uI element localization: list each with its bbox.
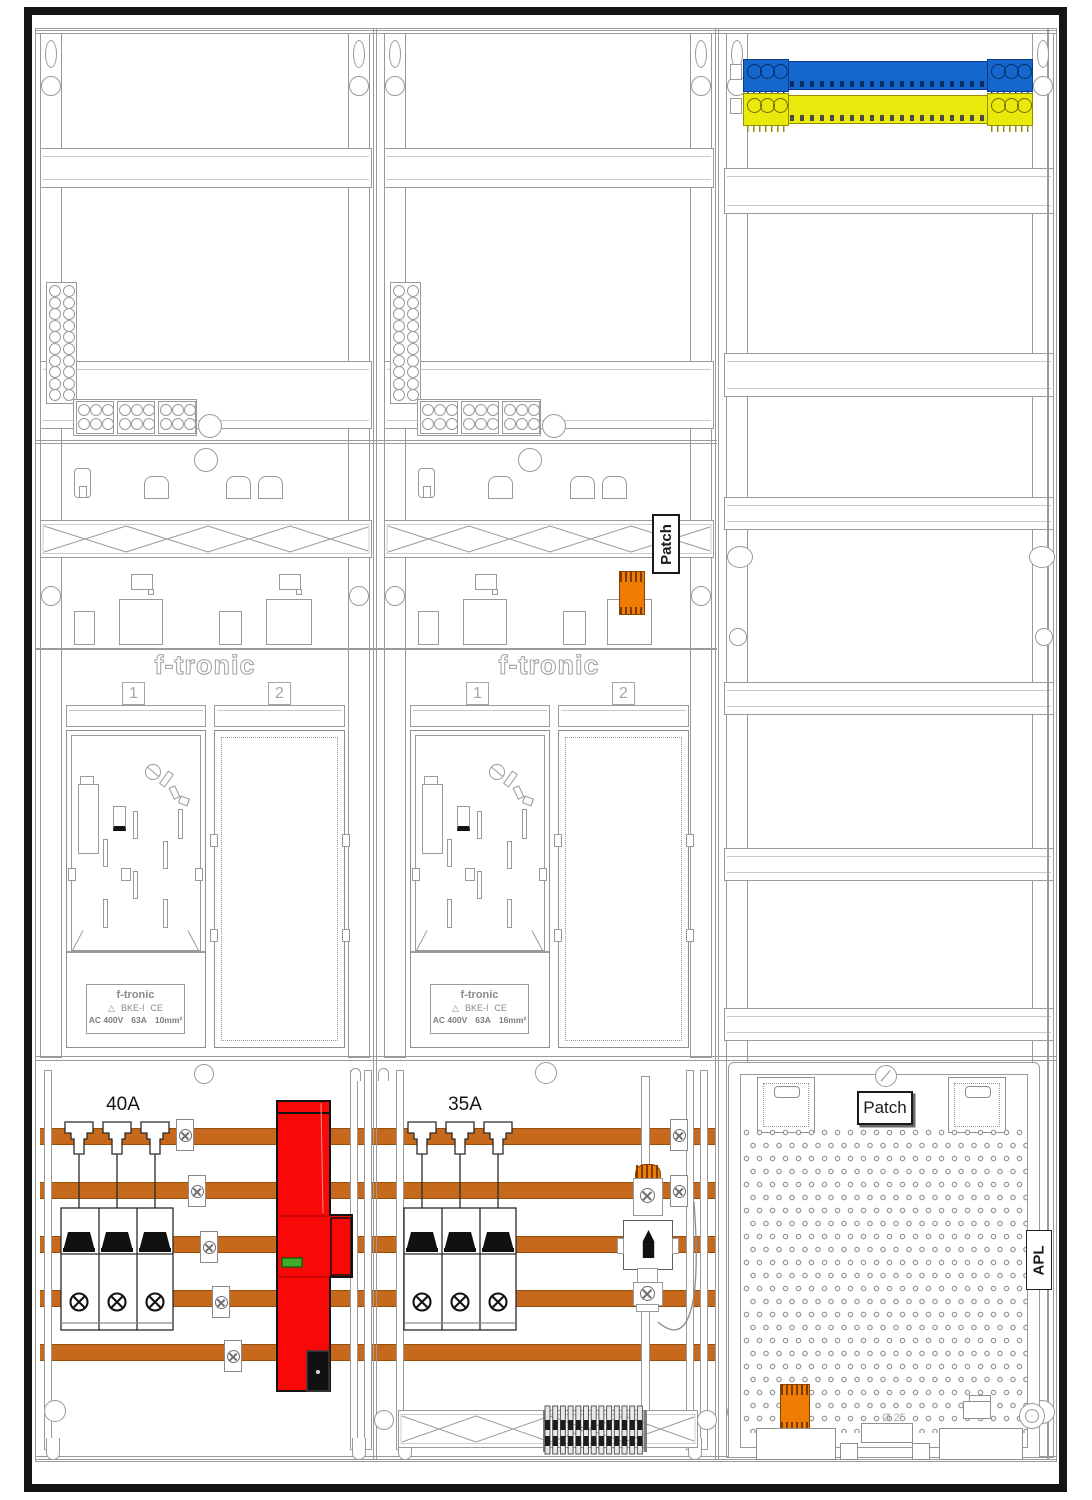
- din-clip: [131, 574, 153, 590]
- triangle-logo-icon: △: [108, 1002, 115, 1014]
- terminal-hole: [63, 285, 75, 297]
- terminal-hole: [78, 418, 90, 430]
- terminal-block-horizontal: [73, 399, 197, 436]
- terminal-hole: [393, 308, 405, 320]
- din-rail-horizontal: [384, 148, 714, 188]
- bar-connector: [730, 64, 742, 80]
- busbar-copper: [40, 1344, 716, 1361]
- terminal-hole: [528, 418, 540, 430]
- position-2-box: 2: [268, 682, 291, 705]
- terminal-hole: [90, 418, 102, 430]
- rail-hole: [729, 628, 747, 646]
- terminal-hole: [63, 320, 75, 332]
- terminal-hole: [63, 378, 75, 390]
- terminal-strip: [543, 1404, 647, 1456]
- terminal-hole: [160, 418, 172, 430]
- main-switch-red: [274, 1098, 356, 1396]
- terminal-hole: [422, 404, 434, 416]
- terminal-hole: [49, 308, 61, 320]
- bke-type-label: f-tronic △ BKE-I CE AC 400V 63A 16mm²: [430, 984, 529, 1034]
- terminal-hole: [143, 404, 155, 416]
- terminal-hole: [504, 418, 516, 430]
- rail-foot: [46, 1438, 60, 1460]
- cable-clamp: [570, 476, 595, 499]
- patch-connector-orange: [619, 571, 645, 615]
- device-cap: [636, 1304, 659, 1312]
- rail-hole: [44, 1400, 66, 1422]
- terminal-end-hole: [542, 414, 566, 438]
- terminal-hole: [407, 308, 419, 320]
- schematic-page: Patch f-tronic 1 2 f-tronic △ BKE-I: [0, 0, 1092, 1500]
- terminal-hole: [407, 366, 419, 378]
- terminal-hole: [475, 418, 487, 430]
- screw-icon: [145, 764, 161, 780]
- plate-header: [66, 705, 206, 727]
- busbar-clamp: [188, 1175, 206, 1207]
- bke-brand: f-tronic: [431, 989, 528, 1002]
- terminal-hole: [63, 331, 75, 343]
- mounting-block: [74, 611, 95, 645]
- terminal-hole: [63, 343, 75, 355]
- pe-bar-end: [987, 93, 1033, 126]
- terminal-hole: [407, 355, 419, 367]
- rail-hole: [1033, 76, 1053, 96]
- cable-clamp-inner: [423, 486, 431, 498]
- busbar-clamp: [200, 1231, 218, 1263]
- din-rail-horizontal: [724, 168, 1054, 214]
- bottom-cutout: [939, 1428, 1023, 1460]
- terminal-hole: [393, 285, 405, 297]
- terminal-hole: [119, 404, 131, 416]
- mounting-rail-vertical: [44, 1070, 52, 1450]
- rail-hole: [374, 1410, 394, 1430]
- terminal-hole: [184, 404, 196, 416]
- terminal-group: [420, 401, 458, 434]
- ce-mark: CE: [150, 1002, 163, 1014]
- indicator-green: [282, 1258, 302, 1267]
- breaker-rating-label: 35A: [430, 1094, 500, 1116]
- rail-hole: [349, 586, 369, 606]
- rail-hole: [535, 1062, 557, 1084]
- rail-hole: [385, 76, 405, 96]
- terminal-hole: [49, 389, 61, 401]
- terminal-group: [461, 401, 499, 434]
- din-clip: [279, 574, 301, 590]
- busbar-clamp: [224, 1340, 242, 1372]
- terminal-hole: [393, 331, 405, 343]
- column-divider: [373, 28, 377, 1460]
- panel-cutout: [948, 1077, 1006, 1133]
- patch-label-vertical: Patch: [652, 514, 680, 574]
- rail-clip: [350, 1068, 361, 1081]
- terminal-hole: [528, 404, 540, 416]
- multimedia-panel: Patch Ø 25: [728, 1062, 1040, 1458]
- terminal-hole: [49, 320, 61, 332]
- neutral-bar-end: [743, 59, 789, 92]
- terminal-hole: [131, 404, 143, 416]
- circuit-breaker-3pole-40A: [60, 1120, 174, 1332]
- terminal-hole: [516, 418, 528, 430]
- terminal-hole: [487, 404, 499, 416]
- terminal-end-hole: [198, 414, 222, 438]
- bke-model: BKE-I: [121, 1002, 145, 1014]
- terminal-hole: [78, 404, 90, 416]
- terminal-hole: [172, 418, 184, 430]
- terminal-hole: [393, 297, 405, 309]
- din-rail-horizontal: [724, 1008, 1054, 1041]
- terminal-hole: [516, 404, 528, 416]
- clamp-screw-icon: [179, 1129, 192, 1142]
- terminal-hole: [446, 404, 458, 416]
- terminal-group: [158, 401, 196, 434]
- plate-header: [214, 705, 345, 727]
- pe-bar-end: [743, 93, 789, 126]
- terminal-block-vertical: [390, 282, 421, 404]
- din-rail-horizontal: [724, 353, 1054, 397]
- pe-bar-terminals: [790, 115, 986, 121]
- din-clip-foot: [296, 589, 302, 595]
- terminal-hole: [407, 378, 419, 390]
- meter-plate-equipped: f-tronic △ BKE-I CE AC 400V 63A 10mm²: [66, 730, 206, 1048]
- neutral-bar-terminals: [790, 81, 986, 87]
- mounting-hole: [194, 448, 218, 472]
- pe-busbar-yellow: [744, 95, 1032, 124]
- conduit-box: [861, 1423, 913, 1443]
- mounting-block: [563, 611, 586, 645]
- terminal-hole: [63, 355, 75, 367]
- apl-label-text: APL: [1031, 1245, 1048, 1275]
- meter-plate-empty: [214, 730, 345, 1048]
- terminal-hole: [172, 404, 184, 416]
- column-divider: [715, 28, 719, 1460]
- patch-panel-label: Patch: [857, 1091, 913, 1125]
- rail-hole: [194, 1064, 214, 1084]
- position-1-box: 1: [122, 682, 145, 705]
- cutout-handle: [965, 1086, 991, 1098]
- frame-line: [35, 30, 1057, 34]
- mounting-hole: [518, 448, 542, 472]
- apl-label-box: APL: [1026, 1230, 1052, 1290]
- bottom-cutout-small: [840, 1443, 858, 1460]
- terminal-hole: [49, 355, 61, 367]
- terminal-hole: [422, 418, 434, 430]
- bottom-cutout: [756, 1428, 836, 1460]
- din-rail-horizontal: [40, 148, 372, 188]
- brand-logo: f-tronic: [90, 650, 320, 681]
- terminal-hole: [434, 418, 446, 430]
- mounting-rail-vertical: [364, 1070, 372, 1450]
- terminal-hole: [407, 297, 419, 309]
- terminal-hole: [393, 320, 405, 332]
- cable-duct: [40, 520, 372, 558]
- device-cap-orange: [635, 1164, 661, 1179]
- rail-hole: [1035, 628, 1053, 646]
- bke-type-label: f-tronic △ BKE-I CE AC 400V 63A 10mm²: [86, 984, 185, 1034]
- cutout-handle: [774, 1086, 800, 1098]
- terminal-hole: [102, 404, 114, 416]
- rail-slot: [1037, 40, 1049, 68]
- terminal-hole: [393, 389, 405, 401]
- terminal-hole: [49, 378, 61, 390]
- terminal-screw-icon: [640, 1286, 655, 1301]
- cable-clamp: [258, 476, 283, 499]
- bracket: [969, 1395, 991, 1402]
- din-rail-horizontal: [724, 682, 1054, 715]
- bke-brand: f-tronic: [87, 989, 184, 1002]
- cable-clamp-inner: [79, 486, 87, 498]
- terminal-hole: [393, 366, 405, 378]
- din-clip-foot: [492, 589, 498, 595]
- terminal-hole: [49, 343, 61, 355]
- plate-header: [558, 705, 689, 727]
- terminal-hole: [487, 418, 499, 430]
- patch-label-text: Patch: [658, 524, 675, 565]
- terminal-hole: [102, 418, 114, 430]
- breaker-rating-label: 40A: [88, 1094, 158, 1116]
- din-clip-foot: [148, 589, 154, 595]
- rail-slot: [695, 40, 707, 68]
- bar-connector: [730, 98, 742, 114]
- busbar-clamp: [176, 1119, 194, 1151]
- neutral-bar-end: [987, 59, 1033, 92]
- position-2-box: 2: [612, 682, 635, 705]
- terminal-hole: [463, 404, 475, 416]
- terminal-hole: [184, 418, 196, 430]
- position-1-box: 1: [466, 682, 489, 705]
- switch-wing: [672, 1238, 679, 1254]
- terminal-hole: [407, 285, 419, 297]
- terminal-hole: [393, 355, 405, 367]
- rail-slot: [389, 40, 401, 68]
- bke-model: BKE-I: [465, 1002, 489, 1014]
- panel-cutout: [757, 1077, 815, 1133]
- meter-plate-empty: [558, 730, 689, 1048]
- terminal-hole: [434, 404, 446, 416]
- rail-slot: [1029, 546, 1055, 568]
- mounting-block: [418, 611, 439, 645]
- mounting-block: [219, 611, 242, 645]
- terminal-hole: [90, 404, 102, 416]
- rail-hole: [697, 1410, 717, 1430]
- terminal-hole: [407, 320, 419, 332]
- brand-logo: f-tronic: [434, 650, 664, 681]
- mounting-strip: [641, 1076, 650, 1174]
- terminal-hole: [393, 343, 405, 355]
- ce-mark: CE: [494, 1002, 507, 1014]
- din-rail-horizontal: [724, 497, 1054, 530]
- clamp-screw-icon: [215, 1296, 228, 1309]
- terminal-hole: [49, 285, 61, 297]
- terminal-hole: [463, 418, 475, 430]
- circuit-breaker-3pole-35A: [403, 1120, 517, 1332]
- terminal-hole: [504, 404, 516, 416]
- terminal-hole: [119, 418, 131, 430]
- rail-foot: [352, 1438, 366, 1460]
- rail-slot: [727, 546, 753, 568]
- mounting-block: [266, 599, 312, 645]
- terminal-hole: [63, 308, 75, 320]
- neutral-busbar-blue: [744, 61, 1032, 90]
- terminal-hole: [475, 404, 487, 416]
- din-rail-horizontal: [724, 848, 1054, 881]
- screw-icon: [489, 764, 505, 780]
- bracket: [963, 1401, 991, 1419]
- mounting-block: [119, 599, 163, 645]
- bottom-cutout-small: [912, 1443, 930, 1460]
- rail-hole: [691, 586, 711, 606]
- terminal-hole: [446, 418, 458, 430]
- rail-hole: [349, 76, 369, 96]
- switch-wing: [617, 1238, 624, 1254]
- frame-line: [35, 1056, 1057, 1061]
- patch-connector-orange: [780, 1384, 810, 1430]
- terminal-hole: [407, 343, 419, 355]
- cable-clamp: [488, 476, 513, 499]
- busbar-clamp: [212, 1286, 230, 1318]
- terminal-group: [76, 401, 114, 434]
- terminal-screw-icon: [640, 1188, 655, 1203]
- terminal-hole: [63, 366, 75, 378]
- terminal-hole: [131, 418, 143, 430]
- cable-clamp: [602, 476, 627, 499]
- rail-slot: [353, 40, 365, 68]
- terminal-hole: [49, 331, 61, 343]
- triangle-logo-icon: △: [452, 1002, 459, 1014]
- terminal-hole: [160, 404, 172, 416]
- clamp-screw-icon: [673, 1129, 686, 1142]
- clamp-screw-icon: [203, 1241, 216, 1254]
- din-clip: [475, 574, 497, 590]
- meter-plate-equipped: f-tronic △ BKE-I CE AC 400V 63A 16mm²: [410, 730, 550, 1048]
- terminal-hole: [63, 297, 75, 309]
- rail-clip: [378, 1068, 389, 1081]
- terminal-hole: [393, 378, 405, 390]
- terminal-block-vertical: [46, 282, 77, 404]
- terminal-group: [502, 401, 540, 434]
- terminal-group: [117, 401, 155, 434]
- cable-clamp: [226, 476, 251, 499]
- busbar-clamp: [670, 1119, 688, 1151]
- clamp-screw-icon: [227, 1350, 240, 1363]
- mounting-block: [463, 599, 507, 645]
- terminal-hole: [407, 331, 419, 343]
- plate-header: [410, 705, 550, 727]
- rail-hole: [41, 76, 61, 96]
- rail-hole: [41, 586, 61, 606]
- rail-slot: [45, 40, 57, 68]
- cable-clamp: [144, 476, 169, 499]
- rail-hole: [385, 586, 405, 606]
- rail-hole: [691, 76, 711, 96]
- clamp-screw-icon: [191, 1185, 204, 1198]
- terminal-hole: [49, 366, 61, 378]
- terminal-hole: [49, 297, 61, 309]
- terminal-hole: [143, 418, 155, 430]
- terminal-block-horizontal: [417, 399, 541, 436]
